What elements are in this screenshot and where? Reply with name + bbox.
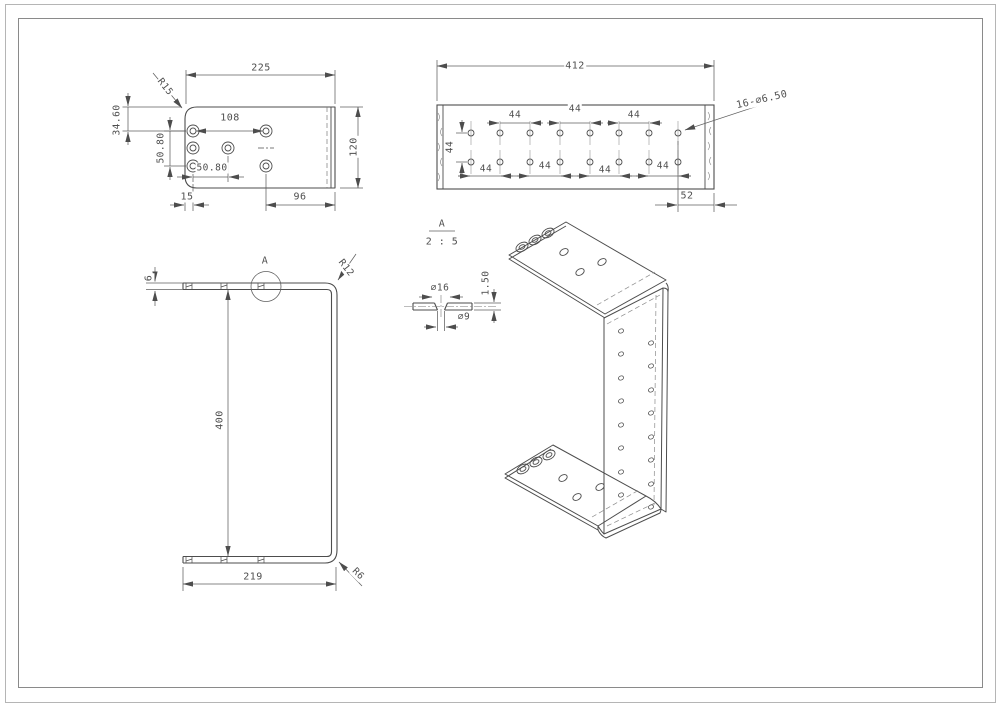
web-view-geometry <box>437 105 714 189</box>
isometric-view-geometry <box>505 222 668 538</box>
dim-web-row2-pitch-2: 44 <box>538 161 552 172</box>
dim-web-end-margin: 52 <box>679 191 694 202</box>
dim-flange-top-offset: 34.60 <box>112 103 123 136</box>
dim-web-row-gap: 44 <box>445 140 456 154</box>
dim-web-length: 412 <box>564 61 586 72</box>
dim-flange-right-margin: 96 <box>292 192 307 203</box>
label-detail-scale: 2 : 5 <box>425 237 460 248</box>
drawing-sheet: 225 120 R15 108 34.60 50.80 50.80 15 96 … <box>0 0 1000 707</box>
drawing-canvas <box>0 0 1000 707</box>
dim-web-row2-pitch-4: 44 <box>656 161 670 172</box>
dim-web-row2-pitch-1: 44 <box>479 164 493 175</box>
dim-profile-thickness: 6 <box>144 274 155 283</box>
dim-web-row1-pitch-2: 44 <box>568 104 582 115</box>
sheet-frame <box>6 5 996 703</box>
detail-view-geometry <box>404 295 497 319</box>
dim-profile-base-length: 219 <box>242 572 264 583</box>
dim-profile-height: 400 <box>215 409 226 431</box>
profile-view-geometry <box>183 272 337 564</box>
dim-detail-counterbore-dia: ⌀16 <box>430 283 451 294</box>
label-detail-marker: A <box>261 256 270 267</box>
dim-detail-hole-dia: ⌀9 <box>457 312 471 323</box>
flange-view-geometry <box>185 107 335 188</box>
dim-flange-hole-pitch-x: 108 <box>219 113 241 124</box>
dim-web-row1-pitch-1: 44 <box>508 110 522 121</box>
dim-web-row1-pitch-3: 44 <box>627 110 641 121</box>
dim-flange-hole-pitch-x2: 50.80 <box>195 163 228 174</box>
dim-flange-edge-margin: 15 <box>179 192 194 203</box>
dim-flange-hole-pitch-y: 50.80 <box>156 131 167 164</box>
dim-web-row2-pitch-3: 44 <box>598 165 612 176</box>
dim-detail-depth: 1.50 <box>481 270 492 297</box>
profile-view-dimensions <box>146 254 362 591</box>
label-detail-title: A <box>438 219 447 230</box>
dim-flange-width: 225 <box>250 63 272 74</box>
dim-flange-height: 120 <box>349 136 360 158</box>
